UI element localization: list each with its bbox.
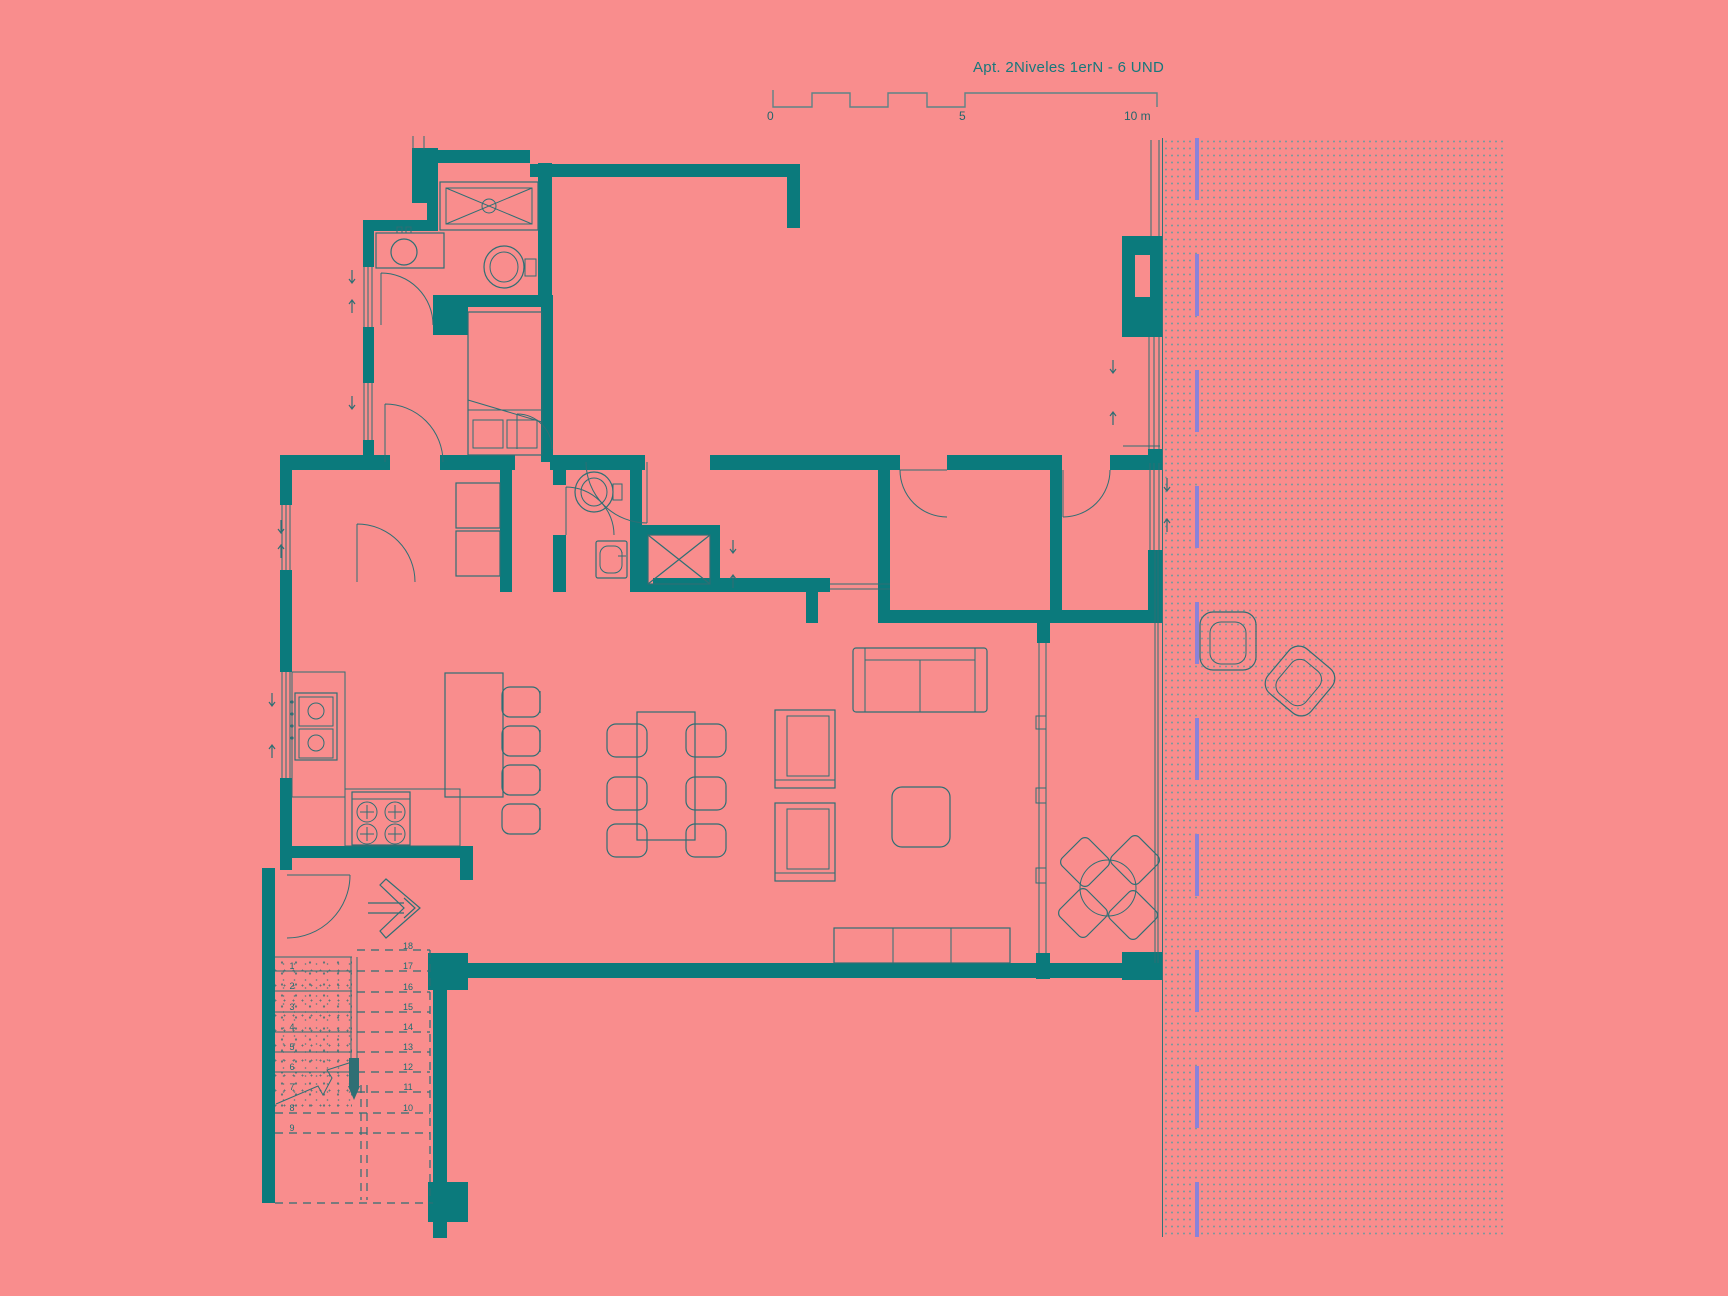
stair-number: 13: [400, 1042, 416, 1052]
scale-label-0: 0: [767, 109, 774, 123]
stair-number: 5: [284, 1042, 300, 1052]
terrace-dining-set: [1056, 833, 1162, 942]
kitchen-sink: [290, 693, 337, 760]
bathroom-sink: [376, 227, 444, 268]
toilet-icon: [484, 246, 536, 288]
sideboard: [834, 928, 1010, 963]
lounge-chair-1: [1200, 612, 1256, 670]
stair-number: 17: [400, 961, 416, 971]
plan-title: Apt. 2Niveles 1erN - 6 UND: [973, 59, 1164, 76]
closet-shelves: [456, 483, 500, 576]
coffee-table: [892, 787, 950, 847]
column-with-duct: [1122, 236, 1162, 337]
stair-number: 2: [284, 981, 300, 991]
scale-bar-line: [773, 90, 1157, 107]
stair-number: 6: [284, 1062, 300, 1072]
scale-label-5: 5: [959, 109, 966, 123]
stair-number: 18: [400, 941, 416, 951]
scale-label-10m: 10 m: [1124, 109, 1151, 123]
armchair-1: [775, 710, 835, 788]
stair-number: 12: [400, 1062, 416, 1072]
stair-number: 14: [400, 1022, 416, 1032]
bed: [468, 312, 542, 455]
armchair-2: [775, 803, 835, 881]
floor-plan-page: { "title": "Apt. 2Niveles 1erN - 6 UND",…: [0, 0, 1728, 1296]
direction-arrows: [269, 270, 1170, 758]
stair-number: 15: [400, 1002, 416, 1012]
floor-plan-drawing: [0, 0, 1728, 1296]
entrance-arrow: [368, 879, 420, 938]
dining-chairs: [607, 724, 726, 857]
kitchen-island: [445, 673, 503, 797]
walls: [262, 148, 1162, 1238]
bar-stools: [502, 687, 540, 834]
second-toilet-icon: [575, 472, 622, 512]
stair-number: 1: [284, 961, 300, 971]
kitchen-counter: [292, 672, 460, 846]
second-sink: [596, 541, 627, 578]
lounge-chair-2: [1260, 641, 1340, 721]
stair-number: 8: [284, 1103, 300, 1113]
handrail: [348, 957, 360, 1100]
stair-number: 3: [284, 1002, 300, 1012]
sliding-glass-door: [1036, 643, 1046, 953]
sofa: [853, 648, 987, 712]
stair-number: 16: [400, 982, 416, 992]
stair-number: 10: [400, 1103, 416, 1113]
stair-number: 11: [400, 1082, 416, 1092]
stove: [347, 789, 460, 845]
stair-number: 4: [284, 1022, 300, 1032]
stair-number: 9: [284, 1123, 300, 1133]
stair-number: 7: [284, 1082, 300, 1092]
shower: [440, 182, 538, 230]
